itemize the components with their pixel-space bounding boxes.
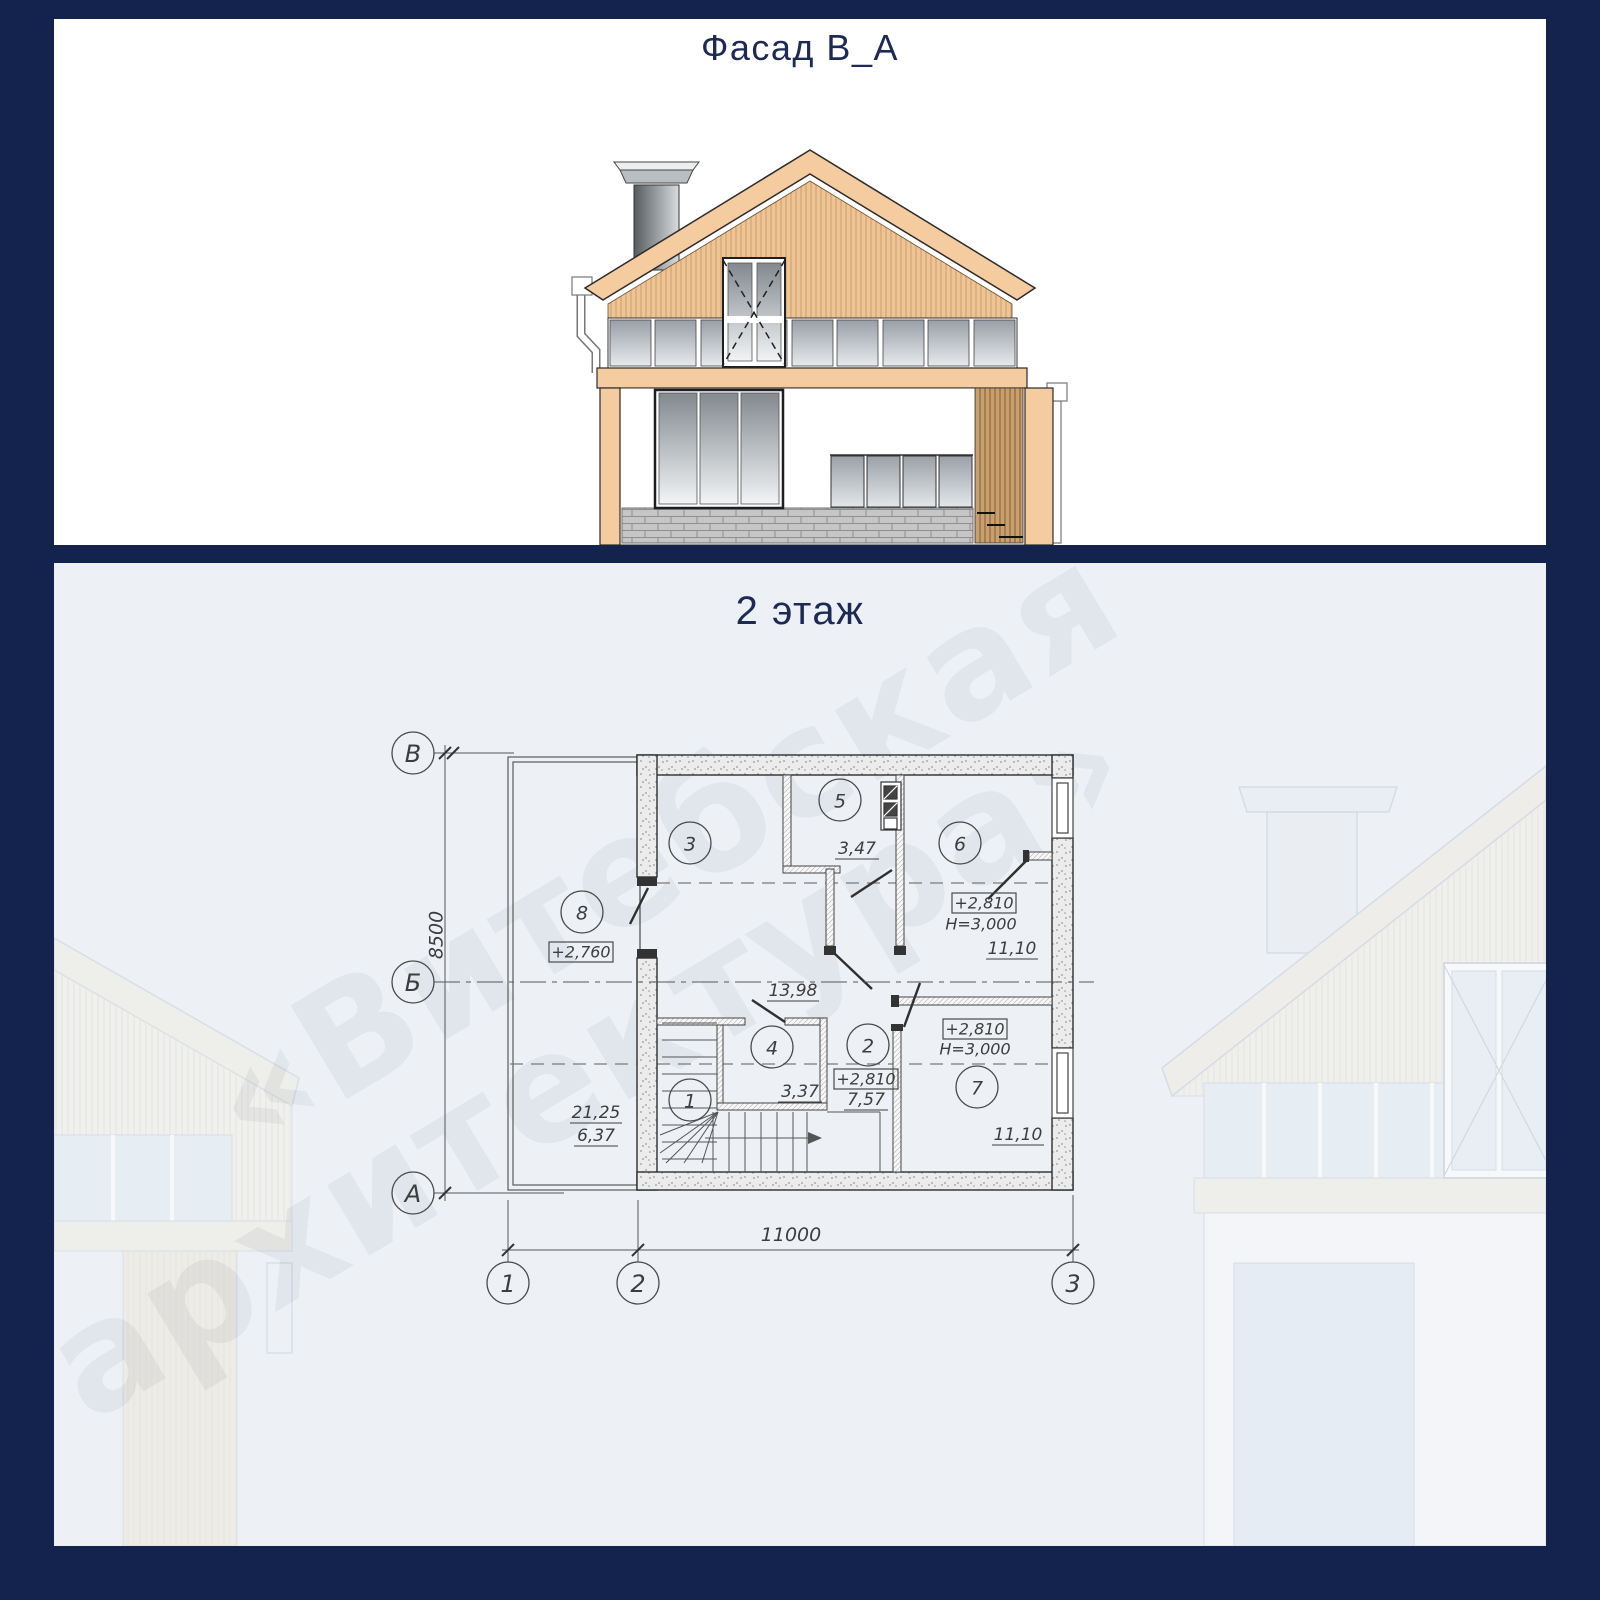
axis-label-3: 3 xyxy=(1065,1270,1080,1298)
stair-arrow xyxy=(808,1132,822,1144)
area-room3: 13,98 xyxy=(769,981,818,1001)
vent-shaft xyxy=(881,782,901,830)
plan-panel: 2 этаж xyxy=(54,563,1546,1546)
level-room6: +2,810 xyxy=(954,894,1013,913)
room-num-3: 3 xyxy=(684,834,696,856)
clerestory-band xyxy=(608,318,1017,368)
ghost-door xyxy=(1444,963,1546,1178)
room-num-8: 8 xyxy=(576,903,588,925)
ghost-facade-right xyxy=(1162,766,1546,1546)
area-room6: 11,10 xyxy=(988,939,1037,959)
watermark: «Витебская архитектура» xyxy=(54,563,1159,1455)
level-room7: +2,810 xyxy=(945,1020,1004,1039)
ground-floor xyxy=(600,388,1053,545)
plan-drawing: «Витебская архитектура» xyxy=(54,563,1546,1546)
area-balcony-reduced: 6,37 xyxy=(577,1126,615,1146)
window-large-left xyxy=(655,390,783,508)
room-num-5: 5 xyxy=(834,791,846,813)
level-room2: +2,810 xyxy=(836,1070,895,1089)
window-plan-room7 xyxy=(1052,1048,1073,1118)
attic-door xyxy=(723,258,785,367)
area-room4: 3,37 xyxy=(781,1082,819,1102)
height-room6: Н=3,000 xyxy=(945,915,1016,934)
drawing-sheet: { "colors": { "frame": "#14234e", "panel… xyxy=(0,0,1600,1600)
brick-base xyxy=(622,508,973,543)
area-room2: 7,57 xyxy=(847,1090,885,1110)
axis-label-a: А xyxy=(403,1180,421,1208)
dim-vertical: 8500 xyxy=(426,911,448,959)
area-room5: 3,47 xyxy=(838,839,876,859)
area-balcony-total: 21,25 xyxy=(572,1103,621,1123)
facade-panel: Фасад В_А xyxy=(54,19,1546,545)
height-room7: Н=3,000 xyxy=(939,1040,1010,1059)
room-num-6: 6 xyxy=(954,834,966,856)
dim-horizontal: 11000 xyxy=(761,1224,821,1246)
wood-slats xyxy=(975,388,1023,543)
area-room7: 11,10 xyxy=(994,1125,1043,1145)
level-room8: +2,760 xyxy=(551,943,610,962)
floor-slab xyxy=(597,368,1027,388)
room-num-1: 1 xyxy=(684,1091,696,1113)
room-num-7: 7 xyxy=(971,1078,983,1100)
corner-column-right xyxy=(1025,388,1053,545)
axis-label-b: Б xyxy=(405,969,421,997)
corner-column-left xyxy=(600,388,620,545)
room-num-2: 2 xyxy=(862,1036,874,1058)
facade-drawing xyxy=(54,19,1546,545)
axis-label-2: 2 xyxy=(630,1270,645,1298)
axis-label-v: В xyxy=(405,740,421,768)
axis-label-1: 1 xyxy=(500,1270,515,1298)
window-plan-room6 xyxy=(1052,778,1073,838)
room-num-4: 4 xyxy=(766,1038,778,1060)
